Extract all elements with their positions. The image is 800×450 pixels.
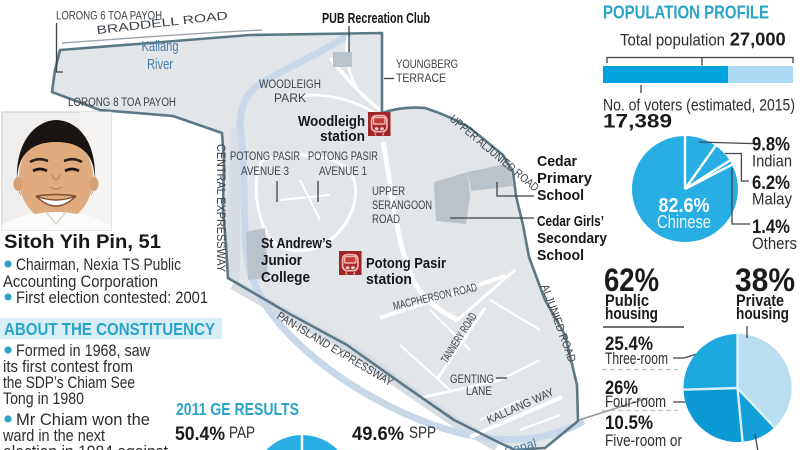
svg-text:Tong in 1980: Tong in 1980 [3,390,84,408]
svg-text:LANE: LANE [466,386,492,398]
svg-text:POTONG PASIR: POTONG PASIR [308,151,378,163]
svg-text:station: station [366,271,412,288]
svg-text:River: River [147,57,173,73]
svg-text:Five-room or: Five-room or [605,431,682,450]
svg-text:PAP: PAP [229,423,255,442]
svg-text:PARK: PARK [274,93,306,105]
svg-text:Chairman, Nexia TS Public: Chairman, Nexia TS Public [16,256,181,274]
svg-text:AVENUE 3: AVENUE 3 [241,166,289,178]
svg-text:PUB Recreation Club: PUB Recreation Club [322,10,430,27]
svg-text:POPULATION PROFILE: POPULATION PROFILE [603,2,769,23]
svg-text:Secondary: Secondary [537,230,608,247]
svg-text:housing: housing [605,304,658,323]
svg-text:Three-room: Three-room [605,349,668,368]
svg-text:49.6%: 49.6% [352,423,404,445]
svg-text:Primary: Primary [537,170,593,187]
svg-text:Total population 27,000: Total population 27,000 [620,30,786,50]
svg-text:station: station [320,128,365,145]
svg-text:POTONG PASIR: POTONG PASIR [230,151,300,163]
svg-text:Cedar Girls’: Cedar Girls’ [537,213,604,230]
svg-text:First election contested: 2001: First election contested: 2001 [16,289,208,307]
svg-text:Others: Others [752,234,797,253]
svg-text:Junior: Junior [261,252,302,269]
svg-text:College: College [261,269,310,286]
svg-text:AVENUE 1: AVENUE 1 [319,166,367,178]
svg-text:SPP: SPP [409,423,436,442]
svg-text:St Andrew’s: St Andrew’s [261,235,332,252]
svg-text:Kallang: Kallang [142,39,179,55]
svg-text:Four-room: Four-room [605,392,666,411]
svg-text:UPPER: UPPER [372,186,405,198]
svg-text:LORONG 8 TOA PAYOH: LORONG 8 TOA PAYOH [68,97,176,109]
svg-text:CENTRAL EXPRESSWAY: CENTRAL EXPRESSWAY [214,144,226,272]
svg-text:50.4%: 50.4% [175,423,225,445]
svg-text:Indian: Indian [752,152,792,171]
svg-text:WOODLEIGH: WOODLEIGH [259,79,321,91]
svg-text:ABOUT THE CONSTITUENCY: ABOUT THE CONSTITUENCY [4,319,215,339]
svg-text:17,389: 17,389 [603,111,672,133]
svg-text:GENTING: GENTING [450,374,494,386]
svg-text:Sitoh Yih Pin, 51: Sitoh Yih Pin, 51 [4,232,161,253]
svg-text:Potong Pasir: Potong Pasir [366,255,446,272]
svg-text:TERRACE: TERRACE [396,73,446,85]
svg-text:2011 GE RESULTS: 2011 GE RESULTS [176,399,299,419]
svg-text:election in 1984 against: election in 1984 against [3,443,168,450]
svg-text:ROAD: ROAD [372,214,400,226]
svg-text:School: School [537,247,584,264]
svg-text:SERANGOON: SERANGOON [372,200,432,212]
svg-text:Chinese: Chinese [657,212,711,232]
svg-text:housing: housing [736,304,789,323]
svg-text:School: School [537,187,584,204]
svg-text:YOUNGBERG: YOUNGBERG [396,59,458,71]
svg-text:Malay: Malay [752,190,792,209]
svg-text:Cedar: Cedar [537,153,577,170]
